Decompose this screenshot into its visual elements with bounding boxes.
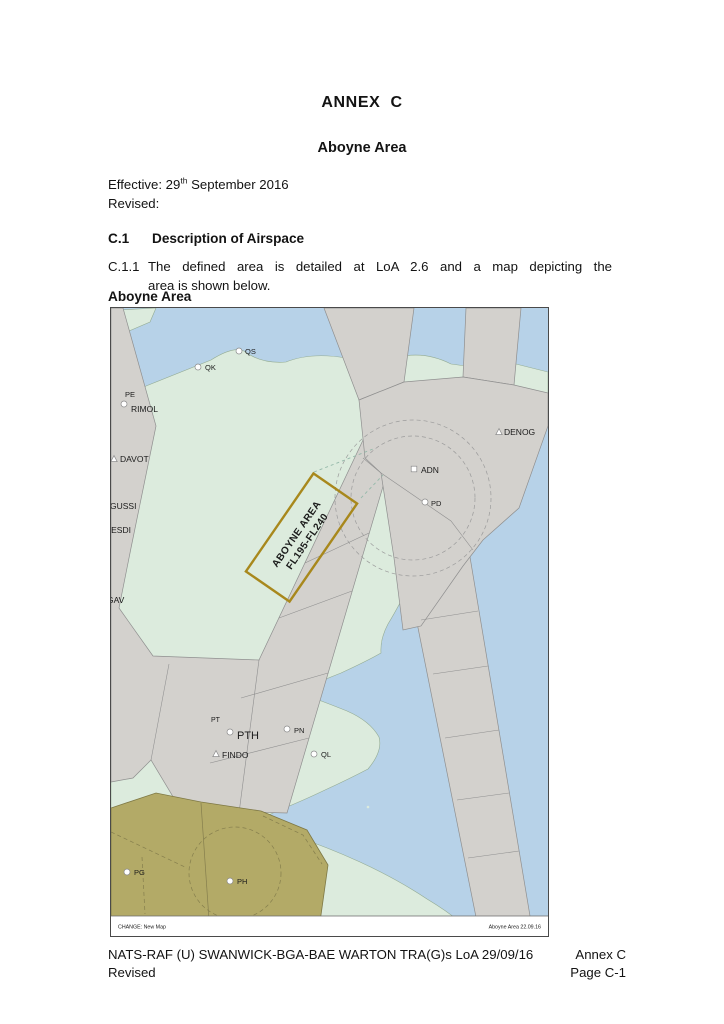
map-label-nesdi: NESDI (111, 525, 131, 535)
map-change-note: CHANGE: New Map (118, 925, 166, 931)
rimol-marker (121, 401, 127, 407)
aboyne-area-map: ABOYNE AREA FL195-FL240 QSQKPERIMOLDAVOT… (110, 307, 549, 937)
map-label-pg: PG (134, 868, 145, 877)
map-label-qs: QS (245, 347, 256, 356)
paragraph-line1: The defined area is detailed at LoA 2.6 … (148, 257, 612, 276)
pg-marker (124, 869, 130, 875)
map-label-ql: QL (321, 750, 331, 759)
map-label-adn: ADN (421, 465, 439, 475)
footer-page-number: Page C-1 (570, 964, 626, 982)
pd-marker (422, 499, 428, 505)
map-label-ph: PH (237, 877, 247, 886)
footer-loa-title: NATS-RAF (U) SWANWICK-BGA-BAE WARTON TRA… (108, 946, 533, 964)
section-number: C.1 (108, 231, 152, 246)
footer-revised: Revised (108, 964, 156, 982)
map-label-pt: PT (211, 717, 221, 724)
ph-marker (227, 878, 233, 884)
qk-marker (195, 364, 201, 370)
map-footer-strip: CHANGE: New Map Aboyne Area 22.09.16 (111, 916, 548, 936)
annex-heading: ANNEX C (0, 94, 724, 112)
map-label-pe: PE (125, 390, 135, 399)
document-page: ANNEX C Aboyne Area Effective: 29th Sept… (0, 0, 724, 1024)
footer-annex-ref: Annex C (575, 946, 626, 964)
map-label-pn: PN (294, 726, 304, 735)
map-label-gav: GAV (111, 595, 125, 605)
islet (367, 806, 370, 809)
pt-marker (227, 729, 233, 735)
ql-marker (311, 751, 317, 757)
map-label-gussi: GUSSI (111, 501, 136, 511)
area-heading: Aboyne Area (0, 140, 724, 156)
north-corridor-east (463, 308, 521, 385)
revised-line: Revised: (108, 196, 159, 211)
map-label-rimol: RIMOL (131, 404, 158, 414)
map-label-davot: DAVOT (120, 454, 149, 464)
adn-marker (411, 466, 417, 472)
section-title: Description of Airspace (152, 231, 304, 246)
pn-marker (284, 726, 290, 732)
map-label-qk: QK (205, 363, 216, 372)
map-label-pth: PTH (237, 730, 259, 742)
map-label-findo: FINDO (222, 750, 249, 760)
map-caption: Aboyne Area (108, 289, 191, 304)
section-heading: C.1 Description of Airspace (108, 231, 304, 246)
map-label-pd: PD (431, 499, 442, 508)
map-ref-note: Aboyne Area 22.09.16 (489, 925, 541, 931)
effective-date-line: Effective: 29th September 2016 (108, 177, 289, 192)
map-label-denog: DENOG (504, 427, 535, 437)
page-footer: NATS-RAF (U) SWANWICK-BGA-BAE WARTON TRA… (108, 946, 626, 982)
qs-marker (236, 348, 242, 354)
